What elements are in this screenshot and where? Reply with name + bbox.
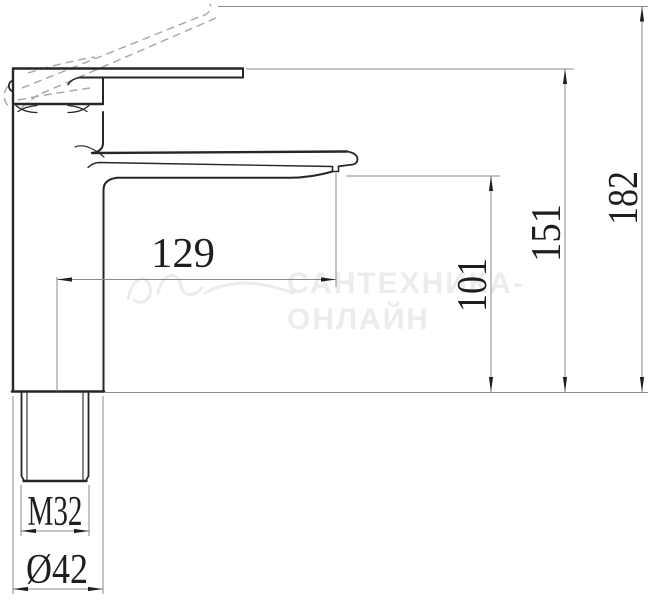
- dimension-lines: [13, 7, 648, 595]
- dim-label-d42: Ø42: [26, 547, 88, 593]
- dim-label-182: 182: [601, 171, 647, 225]
- dim-label-129: 129: [151, 231, 215, 277]
- dim-label-151: 151: [524, 204, 570, 262]
- drawing-canvas: САНТЕХНИКА- ОНЛАЙН: [0, 0, 649, 600]
- dim-label-101: 101: [450, 258, 496, 312]
- cartridge-joint: [16, 106, 89, 113]
- technical-drawing: САНТЕХНИКА- ОНЛАЙН: [0, 0, 649, 600]
- handle-raised-dashed-outline: [4, 4, 216, 109]
- threaded-shank: [12, 392, 104, 482]
- dim-label-m32: M32: [28, 489, 83, 535]
- aerator-notch: [333, 167, 339, 172]
- handle-lever: [9, 69, 243, 105]
- faucet-body: [13, 106, 103, 391]
- watermark-line2: ОНЛАЙН: [287, 302, 430, 336]
